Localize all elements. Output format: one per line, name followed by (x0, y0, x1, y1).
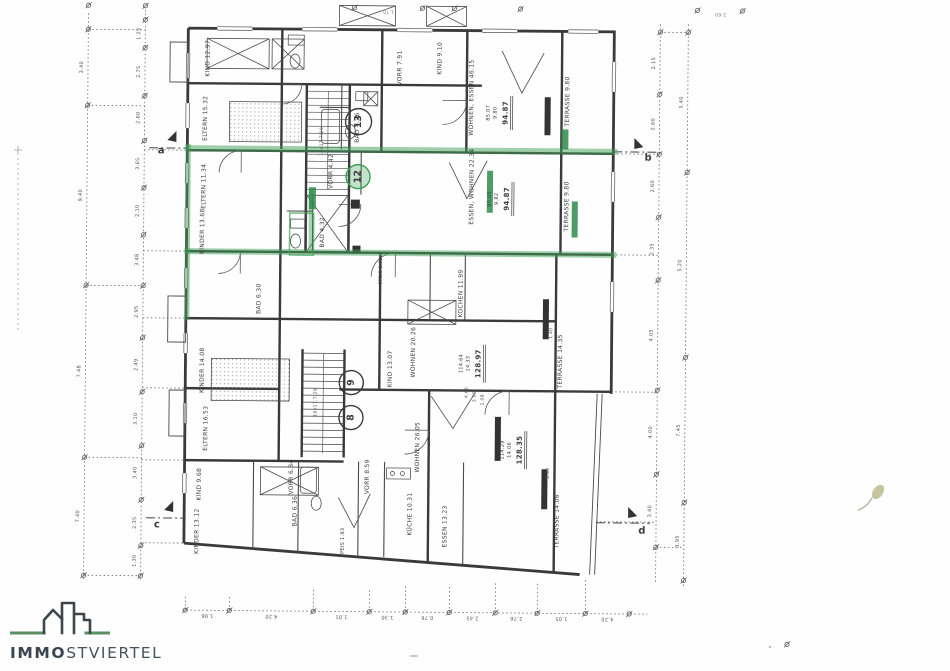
dim-label: 7.48 (76, 365, 82, 377)
room-label: KINDER 13.12 (193, 508, 200, 554)
dim-label: 3.40 (79, 61, 85, 73)
room-label: KINDER 14.08 (199, 348, 206, 394)
room-label: BAD 4.26 (354, 112, 361, 143)
area-total: 128.35 (516, 436, 524, 465)
room-label: BAD 6.30 (255, 283, 262, 314)
dim-label: 2.60 (650, 180, 656, 192)
dim-label: 5.20 (677, 259, 683, 271)
floorplan-scan: 131298 KIND 12.97ELTERN 15.32ELTERN 11.3… (0, 0, 950, 671)
dim-label: 2.60 (715, 11, 726, 17)
room-label: WOHNEN, ESSEN 46.15 (468, 59, 476, 135)
room-label: KIND 12.97 (204, 40, 211, 77)
brand-name-rest: STVIERTEL (66, 644, 162, 662)
area-total: 128.97 (474, 349, 482, 378)
room-label: SPEIS 1.93 (340, 528, 346, 558)
facade-windows (181, 25, 618, 497)
scan-artifacts (14, 146, 887, 657)
dim-label: 4.20 (265, 613, 277, 619)
room-label: ELTERN 15.32 (202, 96, 209, 141)
dim-label: 3.40 (647, 505, 653, 517)
dim-label: 2.10 (135, 205, 141, 217)
room-label: KIND 13.07 (387, 350, 394, 387)
dim-label: 4.00 (648, 426, 654, 438)
dim-label: 3.40 (132, 467, 138, 479)
area-sum: 14.33 (465, 356, 471, 372)
dim-label: 2.35 (132, 516, 138, 528)
room-label: BAD 6.36 (292, 496, 299, 527)
logo-skyline (44, 603, 90, 633)
area-total: 94.87 (503, 187, 511, 211)
brand-name-bold: IMMO (10, 644, 66, 662)
dim-label: 1.05 (555, 615, 567, 621)
dim-label: 0.76 (421, 614, 433, 620)
section-flag-b (634, 138, 643, 149)
dim-label: 1.06 (201, 612, 213, 618)
room-label: WOHNEN 20.26 (410, 327, 417, 378)
section-marker-b: b (644, 153, 652, 164)
room-label: SPEIS 1.90 (378, 257, 384, 284)
dim-label: 2.60 (650, 118, 656, 130)
dimension-chains (83, 9, 688, 614)
area-sum: 9.82 (494, 193, 500, 205)
dim-label: 7.40 (75, 510, 81, 522)
room-label: TERRASSE 9.80 (563, 181, 570, 232)
dim-label: 2.95 (134, 306, 140, 318)
area-sum: 114.29 (500, 440, 506, 459)
dim-label: 7.45 (676, 424, 682, 436)
stair-note: 16x17.7/29 (312, 388, 318, 417)
section-marker-a: a (158, 145, 165, 156)
dim-label: 1.01 (335, 613, 347, 619)
section-marker-c: c (154, 519, 160, 530)
plan-text-labels: KIND 12.97ELTERN 15.32ELTERN 11.34KINDER… (74, 6, 726, 623)
apartment-number-8: 8 (345, 414, 356, 421)
dim-label: 3.95 (675, 535, 681, 547)
dim-label: 1.25 (136, 28, 142, 40)
dim-label: 2.08 (480, 394, 486, 405)
green-highlights (184, 126, 618, 324)
smudge-tail (858, 498, 872, 510)
dim-label: 2.60 (136, 112, 142, 124)
dim-label: 9.40 (78, 189, 84, 201)
room-label: KIND 9.10 (436, 42, 443, 75)
dim-label: 3.10 (133, 413, 139, 425)
scanned-floorplan-page: { "logo": { "brand_bold": "IMMO", "brand… (0, 0, 950, 671)
dim-label: 4.66 (464, 387, 470, 398)
room-label: ESSEN 13.23 (441, 505, 448, 547)
dim-label: 3.48 (134, 254, 140, 266)
dim-label: 2.76 (510, 615, 522, 621)
section-lines (146, 131, 657, 523)
brand-logo-text: IMMOSTVIERTEL (10, 644, 190, 662)
area-total: 94.87 (502, 101, 510, 125)
room-label: ELTERN 11.34 (200, 164, 207, 209)
room-label: BAD 4.32 (319, 217, 326, 248)
room-label: TERRASSE 14.35 (557, 334, 564, 389)
apartment-number-9: 9 (346, 379, 357, 386)
dim-label: 3.65 (135, 158, 141, 170)
speck (410, 655, 418, 657)
dim-label: 2.15 (651, 57, 657, 69)
room-label: ESSEN, WOHNEN 22.34 (468, 148, 476, 224)
area-sum: 85.07 (486, 105, 492, 121)
room-label: ELTERN 16.53 (202, 406, 209, 451)
dim-label: 1.70 (383, 8, 394, 14)
section-marker-d: d (638, 526, 646, 537)
dim-label: 1.30 (381, 614, 393, 620)
apartment-number-12: 12 (353, 170, 364, 183)
dim-label: 3.00 (472, 391, 478, 402)
dim-label: 1.40 (545, 468, 551, 479)
room-label: KINDER 13.68 (199, 209, 206, 255)
speck (769, 646, 771, 648)
room-label: WOHNEN 26.05 (414, 422, 421, 473)
brand-logo: IMMOSTVIERTEL (10, 601, 190, 662)
dim-label: 1.30 (132, 554, 138, 566)
dim-label: 5.40 (679, 96, 685, 108)
dim-label: 2.75 (136, 66, 142, 78)
section-flag-d (628, 507, 637, 518)
stair-note: 16x17.7/29 (319, 127, 325, 156)
room-label: TERRASSE 14.06 (553, 494, 560, 549)
room-label: TERRASSE 9.80 (564, 76, 571, 127)
room-label: VORR 4.42 (327, 154, 334, 189)
room-label: KOCHEN 11.99 (457, 270, 464, 318)
dim-label: 2.35 (649, 243, 655, 255)
dim-label: 2.49 (133, 359, 139, 371)
dim-label: 4.05 (649, 329, 655, 341)
area-sum: 14.06 (507, 442, 513, 458)
dim-label: 2.45 (466, 615, 478, 621)
area-sum: 9.80 (493, 107, 499, 119)
brand-logo-icon (10, 601, 110, 637)
fold-cross (14, 146, 22, 154)
room-label: VORR 6.34 (288, 460, 295, 495)
room-label: KIND 9.68 (196, 468, 203, 501)
room-label: KÜCHE 10.31 (406, 493, 413, 536)
area-sum: 85.05 (487, 191, 493, 207)
room-label: VORR 7.91 (396, 50, 403, 85)
dim-label: 1.40 (548, 328, 554, 339)
dim-label: 4.20 (601, 616, 613, 622)
section-flag-a (167, 131, 176, 142)
room-label: VORR 8.59 (364, 459, 371, 494)
section-flag-c (164, 501, 173, 512)
stair-stringer (323, 353, 324, 453)
area-sum: 114.64 (458, 354, 464, 373)
